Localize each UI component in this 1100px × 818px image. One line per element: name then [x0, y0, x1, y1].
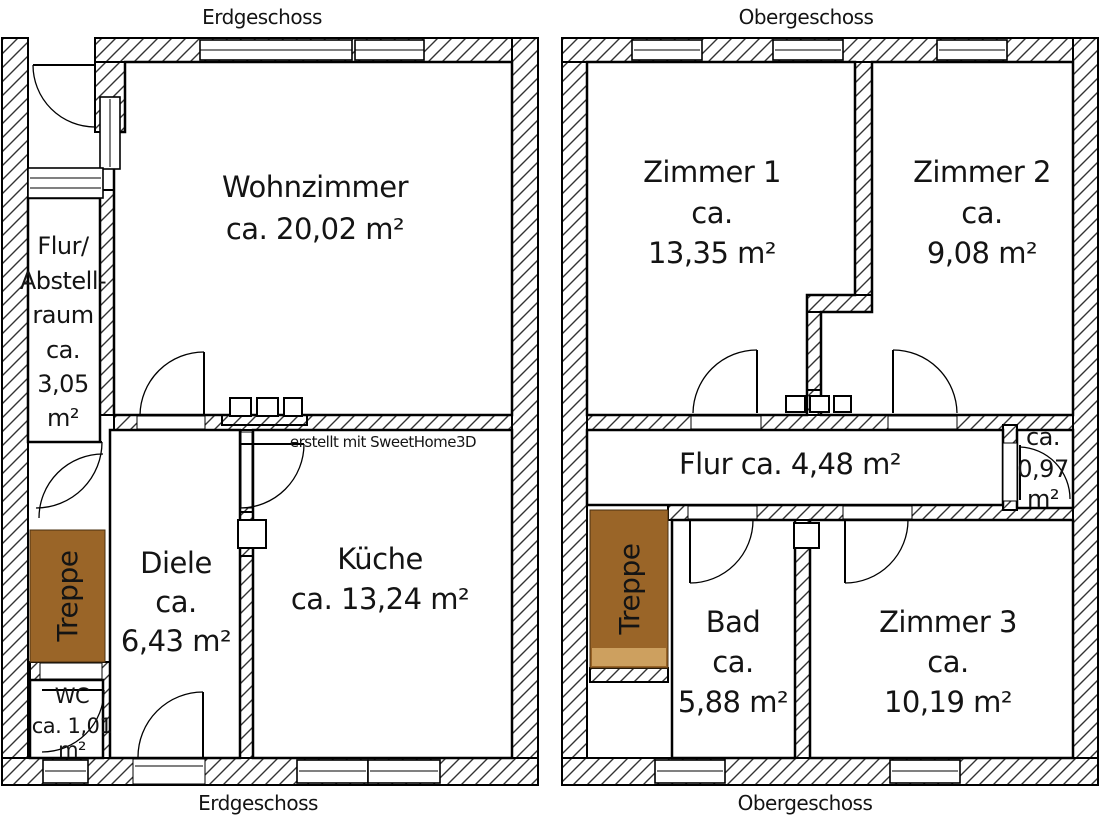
room-label-zimmer3-ca: ca.	[927, 645, 968, 679]
room-area-bad: 5,88 m²	[678, 685, 788, 719]
door-opening-wohnzimmer	[137, 416, 205, 429]
wall-fixture-square-2	[810, 396, 829, 412]
wall-left	[562, 38, 587, 785]
door-opening-wc	[40, 663, 102, 679]
erdgeschoss-stairs: Treppe	[30, 530, 105, 662]
wall-above-flur	[587, 415, 1073, 430]
obergeschoss-title-bottom: Obergeschoss	[738, 791, 873, 815]
room-zimmer3	[810, 520, 1073, 758]
wall-zimmer1-zimmer2	[855, 62, 872, 295]
kueche-fixture-square	[238, 520, 266, 548]
room-area-diele: 6,43 m²	[121, 624, 231, 658]
door-opening-entrance	[133, 759, 205, 784]
wall-fixture-square-3	[284, 398, 302, 416]
room-label-zimmer1: Zimmer 1	[643, 155, 781, 189]
entry-door-arc	[33, 65, 95, 127]
door-opening-zimmer1	[691, 416, 761, 429]
erdgeschoss-title-top: Erdgeschoss	[202, 5, 322, 29]
room-area-zimmer1: 13,35 m²	[648, 236, 776, 270]
room-label-diele: Diele	[140, 546, 212, 580]
window-alcove-horizontal	[28, 168, 103, 198]
room-area-zimmer3: 10,19 m²	[884, 685, 1012, 719]
credit-text: erstellt mit SweetHome3D	[290, 433, 476, 451]
door-opening-zimmer2	[888, 416, 957, 429]
wall-bottom	[562, 758, 1098, 785]
stairs-label: Treppe	[51, 551, 84, 643]
room-label-flur-abstellraum-6: m²	[47, 404, 79, 432]
flur-door-arc	[36, 442, 102, 508]
room-label-wohnzimmer: Wohnzimmer	[222, 170, 409, 204]
room-label-diele-ca: ca.	[155, 585, 196, 619]
room-label-zimmer1-ca: ca.	[691, 196, 732, 230]
bad-fixture-square	[794, 523, 819, 548]
room-area-kueche: ca. 13,24 m²	[291, 582, 469, 616]
stairs-step	[592, 648, 666, 666]
room-label-wc: WC	[55, 684, 89, 708]
room-label-kammer-1: ca.	[1026, 423, 1060, 451]
room-label-flur-abstellraum-5: 3,05	[37, 370, 88, 398]
floor-plan-page: Erdgeschoss	[0, 0, 1100, 818]
door-opening-zimmer3	[843, 506, 912, 519]
room-label-bad: Bad	[706, 605, 761, 639]
wall-below-stairs	[590, 668, 668, 682]
wall-left	[2, 38, 28, 785]
room-area-wc: ca. 1,01	[32, 714, 113, 738]
wall-bad-zimmer3	[795, 520, 810, 758]
wall-flur-right	[100, 190, 114, 415]
wall-fixture-square-1	[230, 398, 251, 416]
room-label-flur: Flur ca. 4,48 m²	[679, 447, 901, 481]
room-area-wohnzimmer: ca. 20,02 m²	[226, 212, 404, 246]
room-label-kammer-2: 0,97	[1017, 455, 1068, 483]
room-label-zimmer3: Zimmer 3	[879, 605, 1017, 639]
wall-fixture-square-1	[786, 396, 805, 412]
room-label-flur-abstellraum-1: Flur/	[37, 232, 90, 260]
room-label-flur-abstellraum-2: Abstell-	[20, 267, 106, 295]
room-label-kueche: Küche	[337, 542, 423, 576]
wall-right	[1073, 38, 1098, 785]
door-opening-bad	[688, 506, 757, 519]
wall-jog	[807, 295, 872, 312]
wall-fixture-square-2	[257, 398, 278, 416]
room-label-zimmer2-ca: ca.	[961, 196, 1002, 230]
obergeschoss-stairs: Treppe	[590, 510, 668, 668]
room-area-wc-unit: m²	[58, 738, 86, 762]
stairs-label: Treppe	[613, 544, 646, 636]
room-area-zimmer2: 9,08 m²	[927, 236, 1037, 270]
room-label-bad-ca: ca.	[712, 645, 753, 679]
wall-fixture-square-3	[834, 396, 851, 412]
room-label-kammer-3: m²	[1027, 485, 1059, 513]
wall-stem	[807, 312, 821, 390]
wall-right	[512, 38, 538, 785]
floor-plan-erdgeschoss: Erdgeschoss	[2, 5, 538, 815]
floor-plans-drawing: Erdgeschoss	[0, 0, 1100, 818]
room-label-zimmer2: Zimmer 2	[913, 155, 1051, 189]
obergeschoss-title-top: Obergeschoss	[739, 5, 874, 29]
erdgeschoss-title-bottom: Erdgeschoss	[198, 791, 318, 815]
diele-door-arc	[39, 454, 103, 518]
room-label-flur-abstellraum-3: raum	[32, 301, 93, 329]
floor-plan-obergeschoss: Obergeschoss	[562, 5, 1098, 815]
door-opening-kammer	[1003, 443, 1017, 501]
room-label-flur-abstellraum-4: ca.	[46, 336, 80, 364]
